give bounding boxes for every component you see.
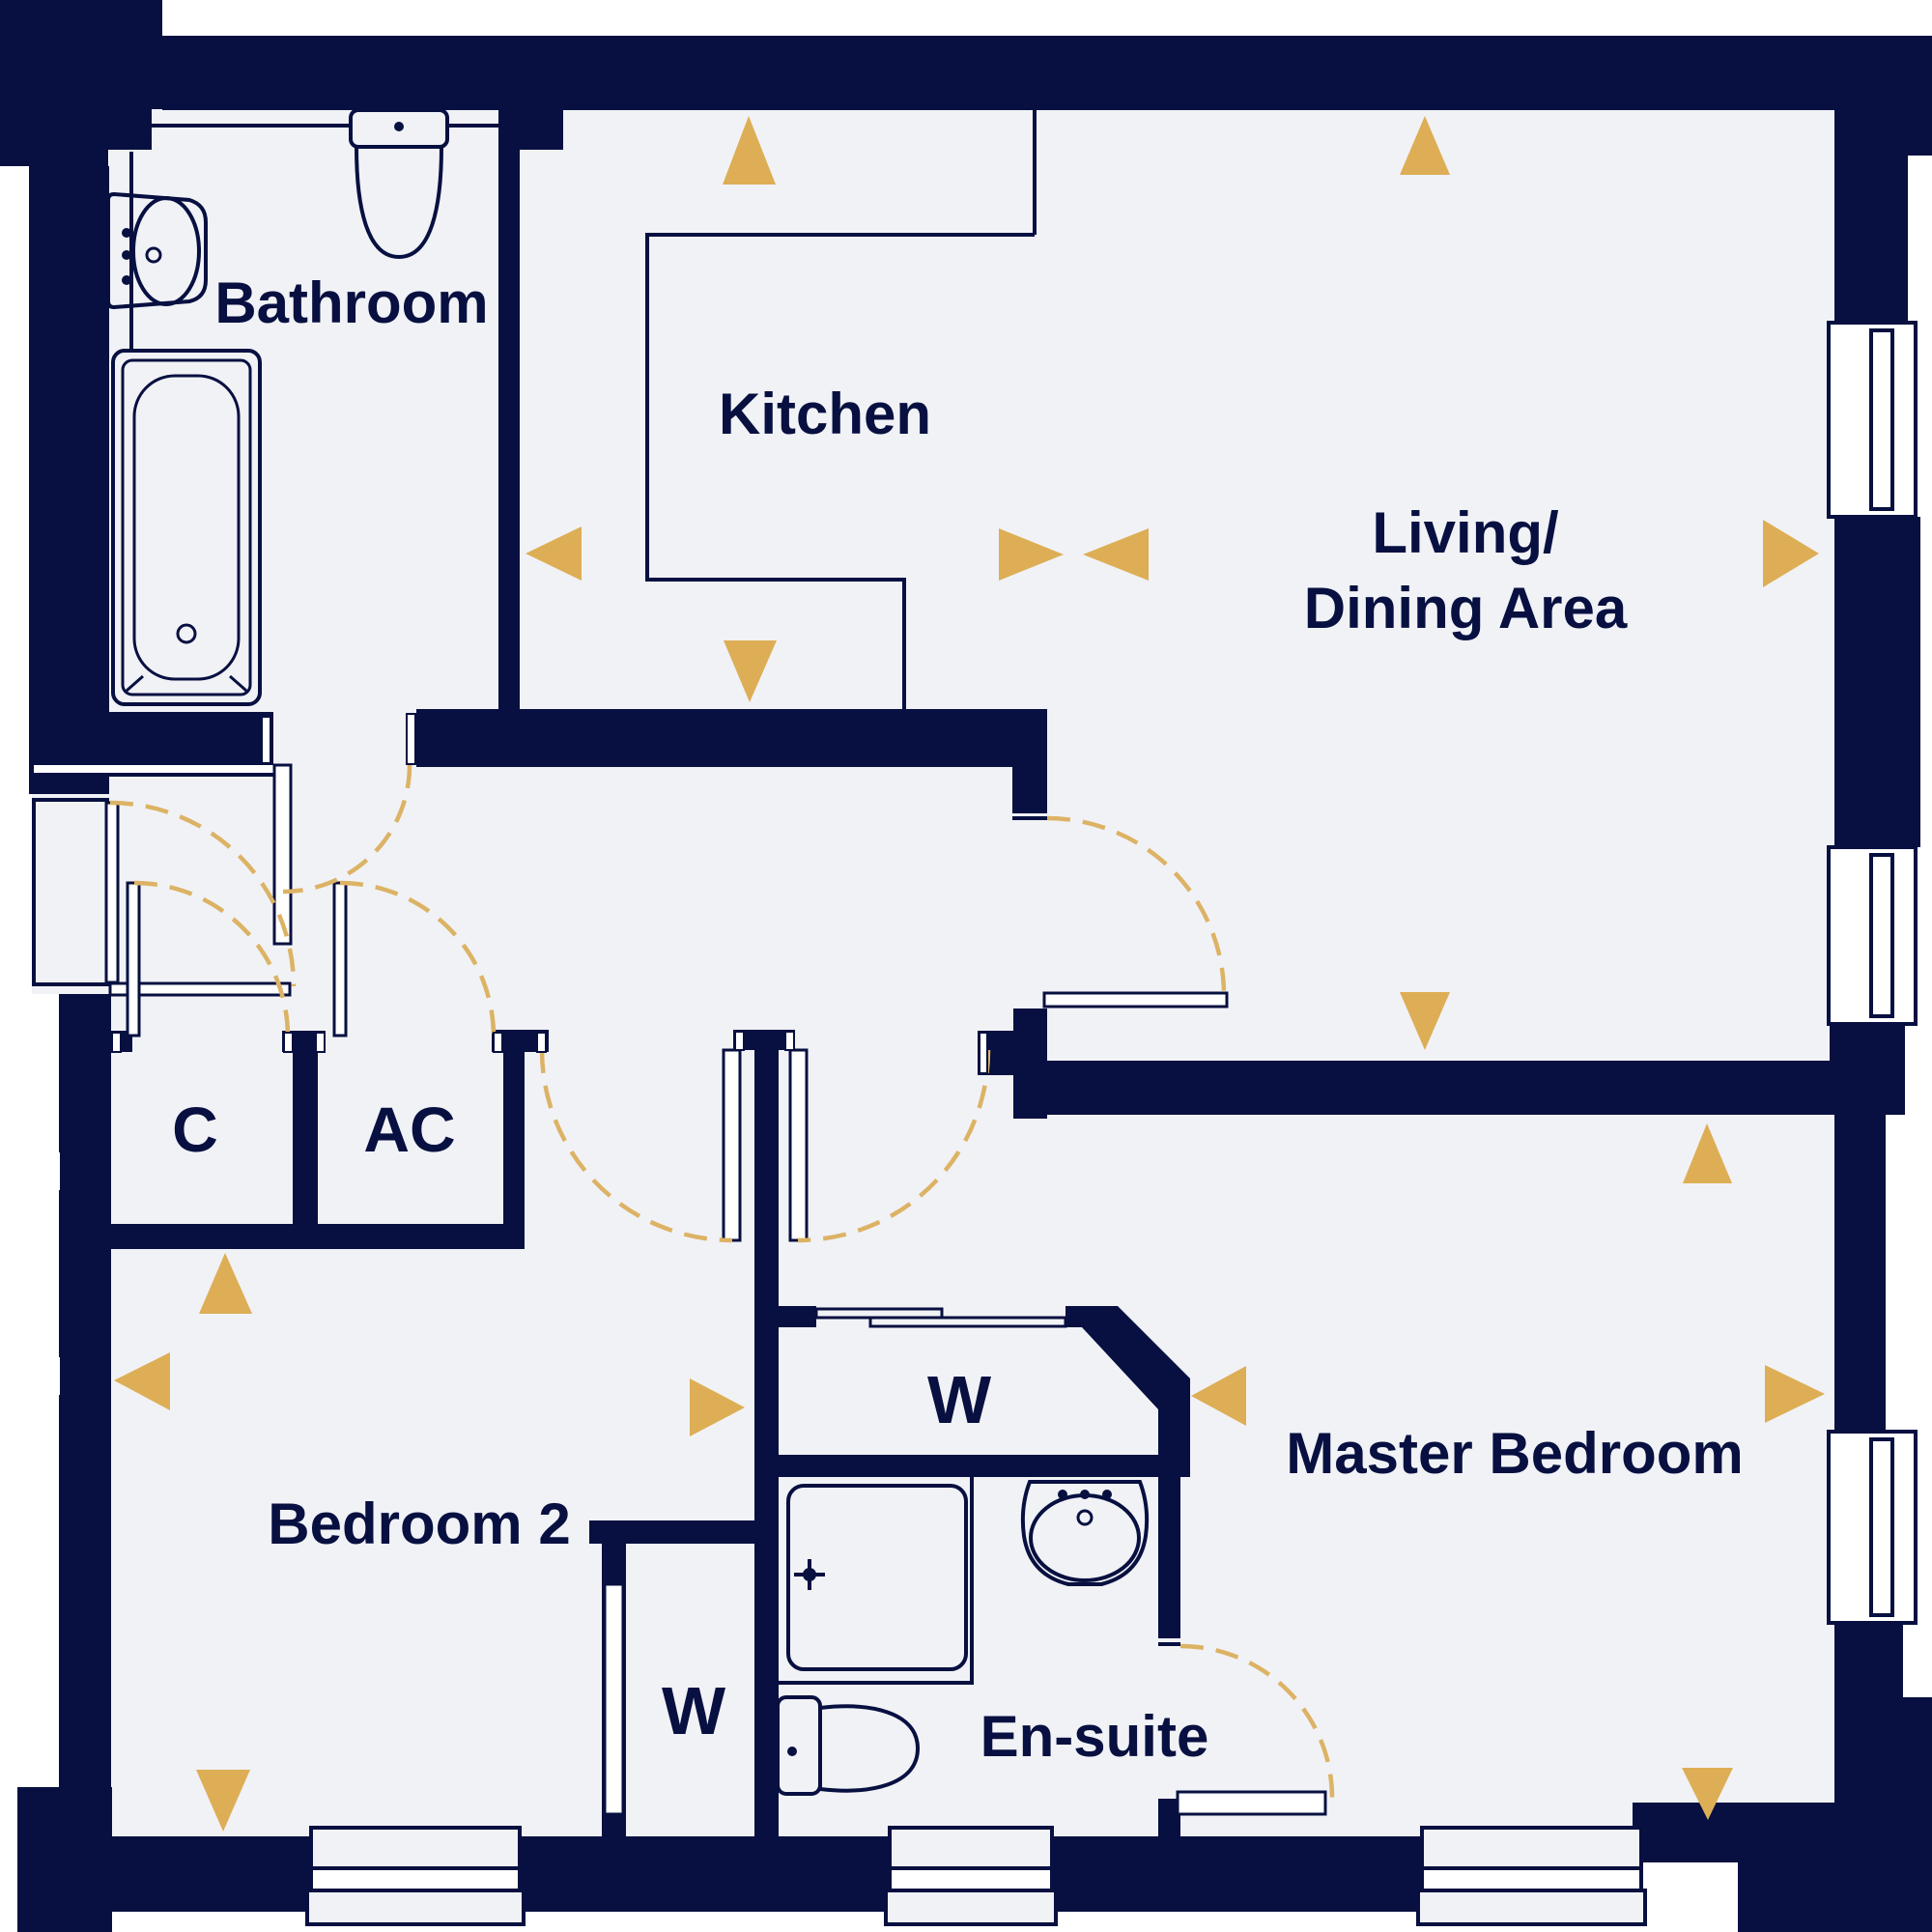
svg-text:Living/: Living/ — [1372, 500, 1559, 565]
svg-text:W: W — [927, 1362, 991, 1437]
svg-text:En-suite: En-suite — [980, 1704, 1209, 1769]
svg-text:Bathroom: Bathroom — [214, 270, 488, 335]
svg-text:Dining Area: Dining Area — [1304, 576, 1628, 640]
svg-text:AC: AC — [363, 1094, 455, 1165]
svg-text:C: C — [172, 1094, 218, 1165]
svg-text:Kitchen: Kitchen — [719, 382, 931, 446]
svg-text:W: W — [662, 1673, 725, 1748]
svg-text:Master Bedroom: Master Bedroom — [1286, 1421, 1743, 1486]
svg-text:Bedroom 2: Bedroom 2 — [268, 1492, 570, 1556]
